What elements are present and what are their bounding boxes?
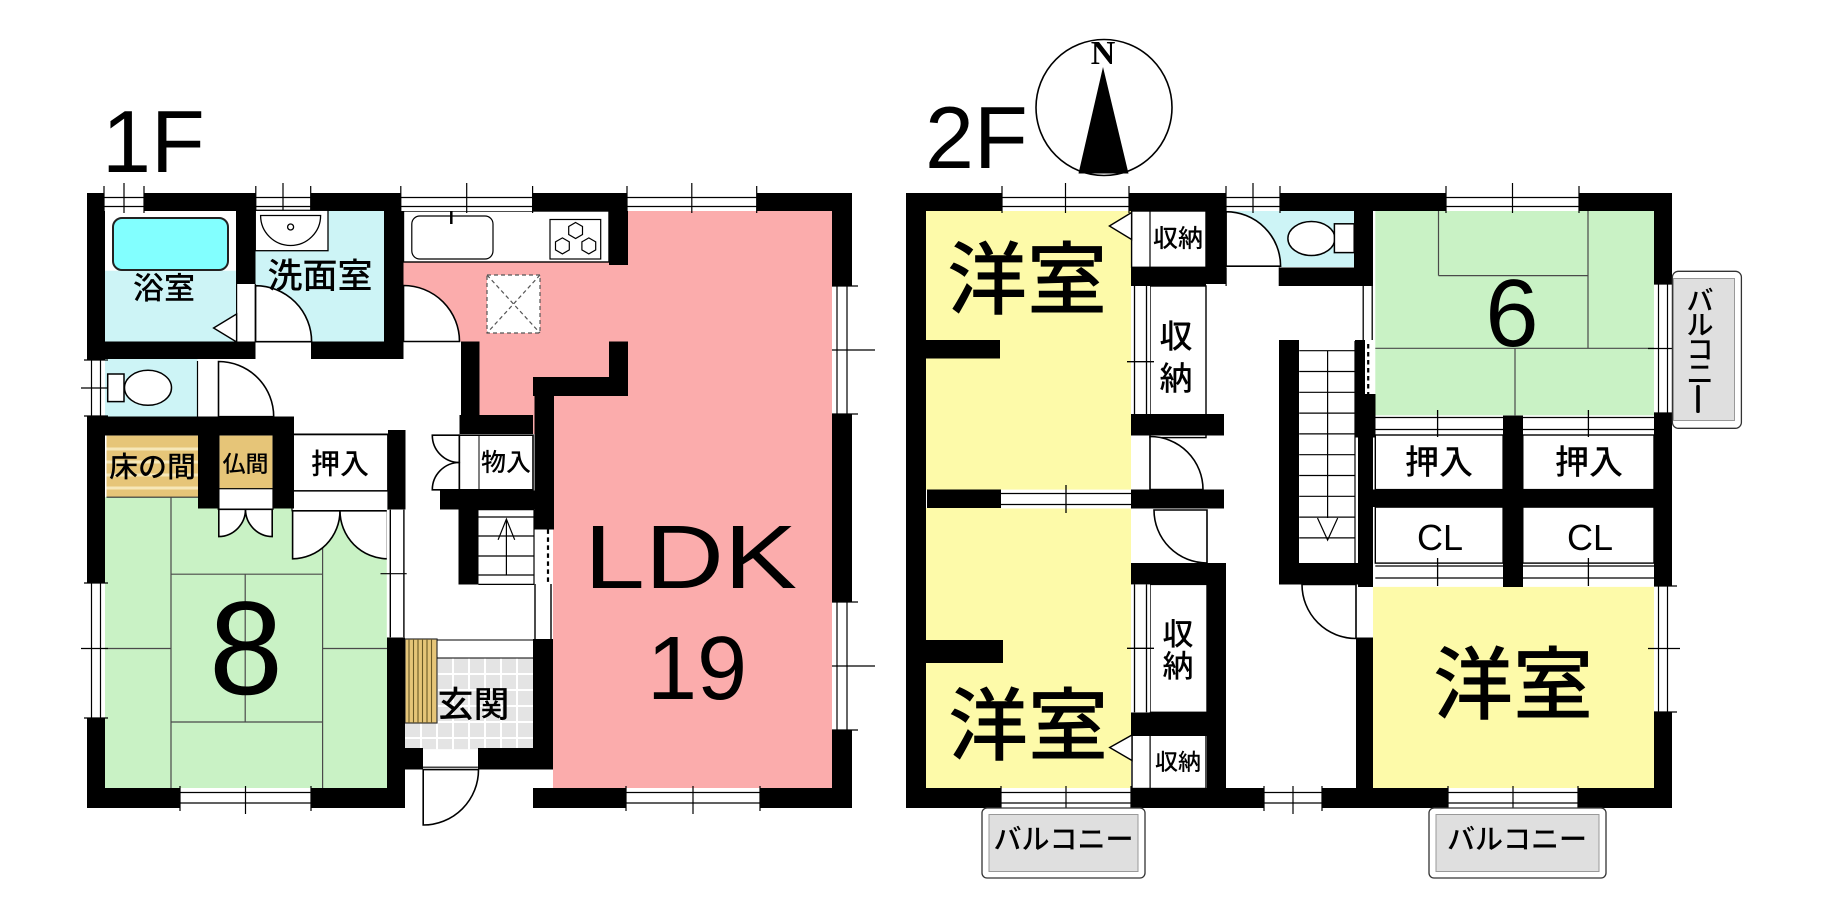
svg-text:LDK: LDK <box>584 508 797 608</box>
svg-text:1F: 1F <box>102 92 205 191</box>
svg-text:2F: 2F <box>925 88 1028 187</box>
svg-text:19: 19 <box>647 619 747 719</box>
svg-text:CL: CL <box>1567 517 1613 558</box>
svg-text:6: 6 <box>1485 260 1538 367</box>
svg-text:8: 8 <box>209 575 283 723</box>
svg-text:N: N <box>1091 35 1116 72</box>
svg-text:CL: CL <box>1417 517 1463 558</box>
